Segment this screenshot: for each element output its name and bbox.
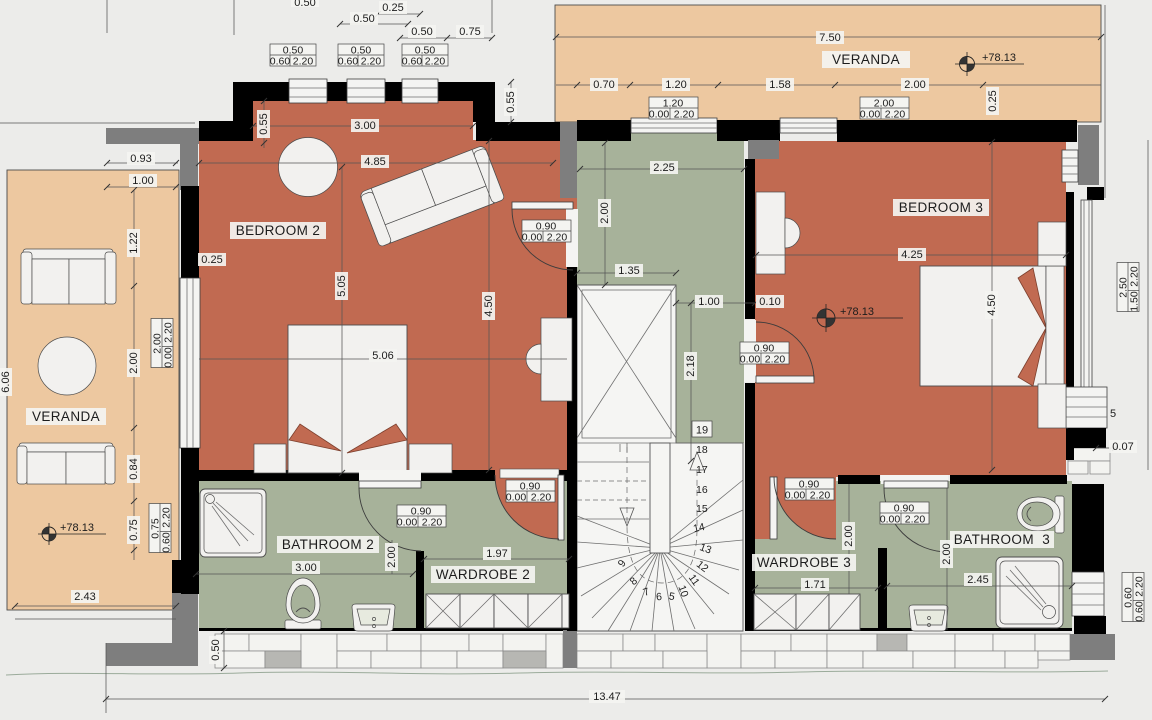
svg-text:0.50: 0.50 <box>353 13 374 25</box>
svg-text:0.50: 0.50 <box>411 26 432 38</box>
svg-text:2.18: 2.18 <box>685 355 697 376</box>
svg-text:0.50: 0.50 <box>294 0 315 9</box>
svg-text:0.07: 0.07 <box>1112 441 1133 453</box>
svg-text:2.20: 2.20 <box>885 109 906 121</box>
svg-text:2.20: 2.20 <box>161 507 173 528</box>
svg-text:0.93: 0.93 <box>130 153 151 165</box>
svg-text:2.00: 2.00 <box>904 79 925 91</box>
svg-text:BATHROOM 2: BATHROOM 2 <box>282 537 374 552</box>
svg-text:BEDROOM 3: BEDROOM 3 <box>899 200 984 215</box>
svg-text:0.25: 0.25 <box>987 90 999 111</box>
svg-text:16: 16 <box>696 484 708 496</box>
svg-text:VERANDA: VERANDA <box>832 52 900 67</box>
svg-text:2.20: 2.20 <box>293 56 314 68</box>
svg-text:2.20: 2.20 <box>547 232 568 244</box>
svg-text:0.84: 0.84 <box>128 458 140 479</box>
svg-text:2.20: 2.20 <box>425 56 446 68</box>
svg-text:BEDROOM 2: BEDROOM 2 <box>236 223 321 238</box>
svg-text:0.10: 0.10 <box>759 296 780 308</box>
svg-text:5.06: 5.06 <box>372 350 393 362</box>
svg-text:1.97: 1.97 <box>486 548 507 560</box>
svg-text:0.60: 0.60 <box>1134 601 1146 622</box>
svg-text:2.00: 2.00 <box>599 202 611 223</box>
svg-text:0.55: 0.55 <box>505 91 517 112</box>
svg-text:3.00: 3.00 <box>354 120 375 132</box>
svg-text:+78.13: +78.13 <box>982 52 1016 64</box>
svg-text:1.20: 1.20 <box>665 79 686 91</box>
svg-text:2.20: 2.20 <box>1129 266 1141 287</box>
svg-text:2.20: 2.20 <box>531 492 552 504</box>
svg-text:0.50: 0.50 <box>210 639 222 660</box>
svg-text:0.70: 0.70 <box>593 79 614 91</box>
svg-text:+78.13: +78.13 <box>840 306 874 318</box>
svg-text:1.00: 1.00 <box>698 296 719 308</box>
svg-text:18: 18 <box>696 444 708 456</box>
svg-text:0.00: 0.00 <box>649 109 670 121</box>
svg-text:15: 15 <box>696 503 708 515</box>
svg-text:4.85: 4.85 <box>364 156 385 168</box>
svg-text:5: 5 <box>1110 408 1116 420</box>
svg-text:19: 19 <box>696 425 708 437</box>
svg-text:0.00: 0.00 <box>522 232 543 244</box>
svg-text:1.58: 1.58 <box>769 79 790 91</box>
svg-text:0.00: 0.00 <box>785 490 806 502</box>
svg-text:0.00: 0.00 <box>506 492 527 504</box>
svg-text:2.45: 2.45 <box>967 574 988 586</box>
svg-text:0.00: 0.00 <box>163 347 175 368</box>
svg-text:2.00: 2.00 <box>843 525 855 546</box>
svg-text:2.25: 2.25 <box>653 162 674 174</box>
svg-text:2.20: 2.20 <box>163 322 175 343</box>
svg-text:6.06: 6.06 <box>0 371 12 392</box>
svg-text:1.35: 1.35 <box>618 265 639 277</box>
svg-text:VERANDA: VERANDA <box>32 409 100 424</box>
svg-text:0.60: 0.60 <box>270 56 291 68</box>
svg-text:5.05: 5.05 <box>336 275 348 296</box>
svg-text:7.50: 7.50 <box>819 32 840 44</box>
svg-text:4.25: 4.25 <box>901 249 922 261</box>
svg-text:0.60: 0.60 <box>338 56 359 68</box>
svg-text:2.20: 2.20 <box>361 56 382 68</box>
svg-text:1.50: 1.50 <box>1129 291 1141 312</box>
svg-text:2.20: 2.20 <box>674 109 695 121</box>
svg-text:17: 17 <box>696 464 708 476</box>
svg-text:0.75: 0.75 <box>128 519 140 540</box>
svg-text:2.00: 2.00 <box>128 352 140 373</box>
svg-text:2.20: 2.20 <box>905 514 926 526</box>
svg-text:13.47: 13.47 <box>593 691 621 703</box>
svg-text:2.20: 2.20 <box>765 354 786 366</box>
svg-text:0.60: 0.60 <box>161 532 173 553</box>
svg-text:BATHROOM 3: BATHROOM 3 <box>954 532 1050 547</box>
svg-text:1.00: 1.00 <box>132 175 153 187</box>
svg-text:4.50: 4.50 <box>483 295 495 316</box>
svg-text:2.20: 2.20 <box>810 490 831 502</box>
svg-text:2.20: 2.20 <box>422 517 443 529</box>
svg-text:0.00: 0.00 <box>397 517 418 529</box>
svg-text:2.43: 2.43 <box>74 591 95 603</box>
svg-text:0.00: 0.00 <box>740 354 761 366</box>
svg-text:0.75: 0.75 <box>459 26 480 38</box>
svg-text:2.20: 2.20 <box>1134 576 1146 597</box>
svg-text:6: 6 <box>656 591 663 603</box>
svg-text:3.00: 3.00 <box>295 562 316 574</box>
svg-text:0.55: 0.55 <box>258 113 270 134</box>
svg-text:WARDROBE 2: WARDROBE 2 <box>436 567 530 582</box>
svg-text:0.25: 0.25 <box>382 2 403 14</box>
svg-text:4.50: 4.50 <box>986 294 998 315</box>
svg-text:0.00: 0.00 <box>880 514 901 526</box>
svg-text:1.71: 1.71 <box>804 579 825 591</box>
svg-text:0.60: 0.60 <box>402 56 423 68</box>
svg-text:WARDROBE 3: WARDROBE 3 <box>757 555 851 570</box>
svg-text:2.00: 2.00 <box>386 546 398 567</box>
svg-text:1.22: 1.22 <box>128 232 140 253</box>
svg-text:0.25: 0.25 <box>201 254 222 266</box>
svg-text:0.00: 0.00 <box>860 109 881 121</box>
svg-text:+78.13: +78.13 <box>60 522 94 534</box>
